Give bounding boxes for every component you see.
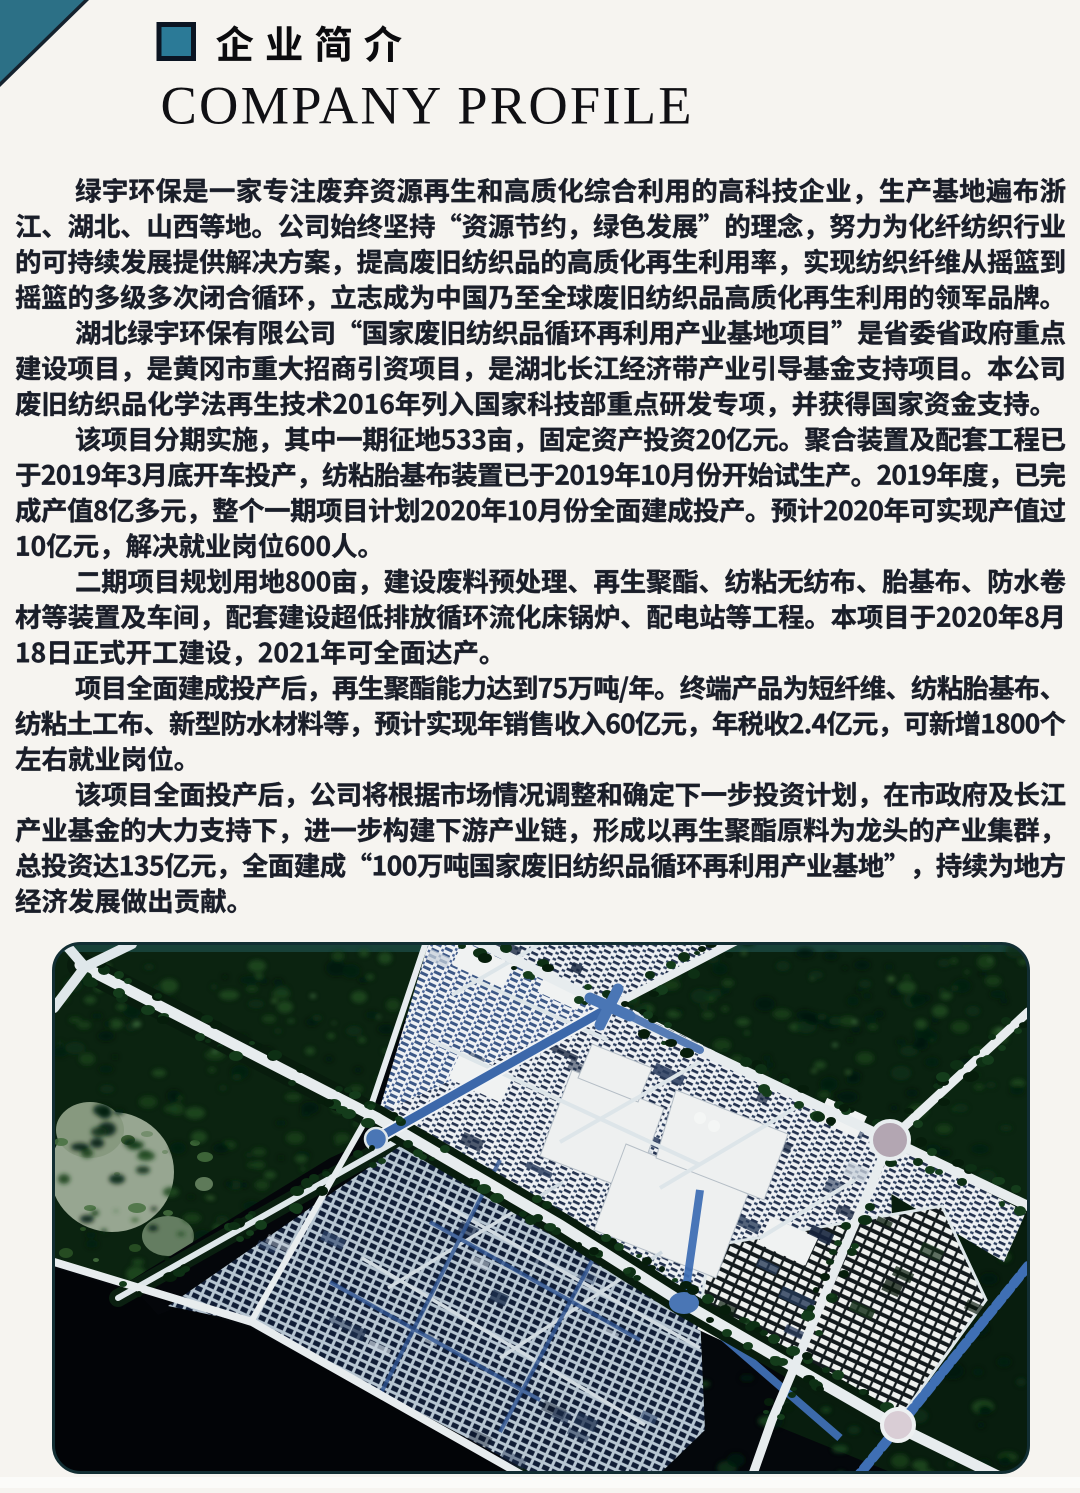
- svg-text:COMPANY PROFILE: COMPANY PROFILE: [161, 75, 694, 136]
